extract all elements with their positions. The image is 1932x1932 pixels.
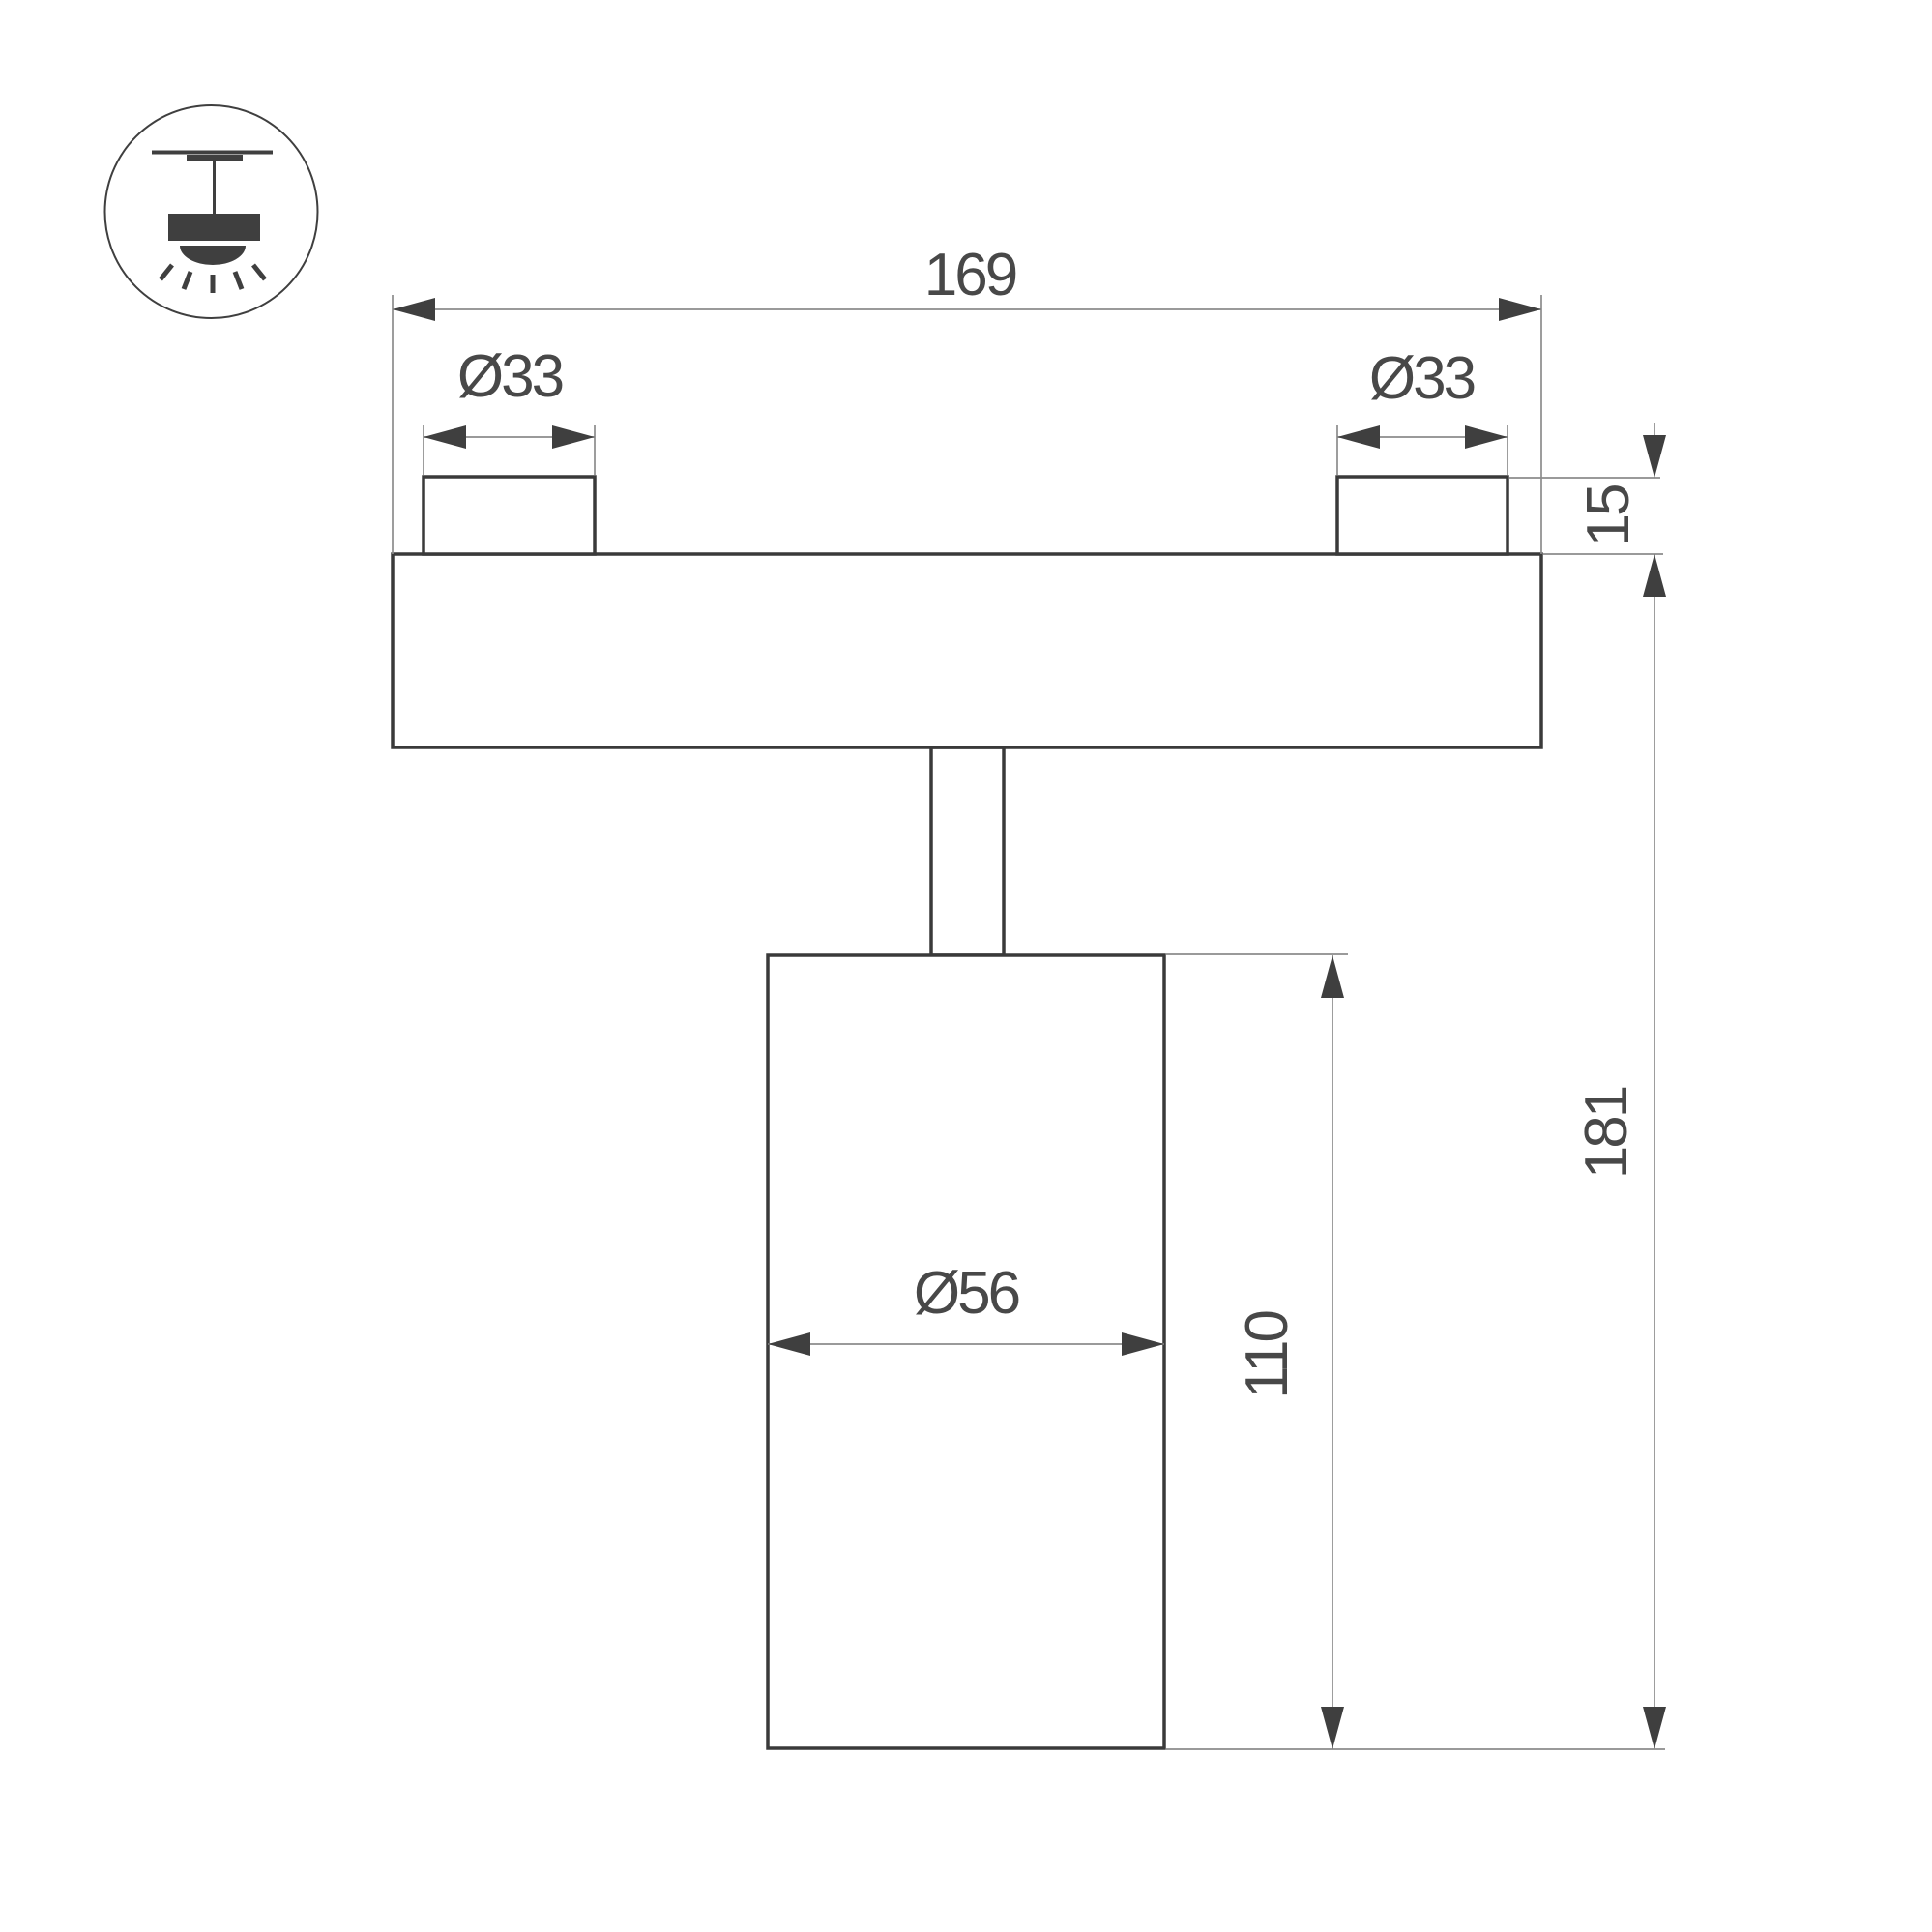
icon-lamp-body (168, 214, 260, 241)
dim-right-boss-diameter: Ø33 (1337, 345, 1508, 475)
dim-boss-height: 15 (1509, 423, 1666, 554)
arrow-right-icon (1465, 425, 1508, 449)
drawing-canvas: 169 Ø33 Ø33 15 181 1 (0, 0, 1932, 1932)
dim-label-boss-height: 15 (1575, 485, 1642, 546)
dim-body-height: 110 (1166, 954, 1665, 1749)
right-boss-outline (1337, 477, 1508, 554)
arrow-down-icon (1643, 435, 1666, 478)
arrow-up-icon (1643, 554, 1666, 597)
dim-label-body-height: 110 (1234, 1311, 1301, 1399)
arrow-left-icon (393, 298, 435, 321)
dim-label-overall-width: 169 (924, 242, 1016, 308)
arrow-right-icon (552, 425, 595, 449)
icon-light-rays (161, 265, 265, 293)
icon-track-bar (187, 155, 243, 161)
lamp-body-outline (768, 955, 1164, 1748)
arrow-down-icon (1321, 1707, 1344, 1749)
dim-label-right-boss-diameter: Ø33 (1369, 345, 1475, 412)
dim-label-total-height: 181 (1573, 1087, 1640, 1179)
dim-label-left-boss-diameter: Ø33 (457, 343, 563, 410)
left-boss-outline (424, 477, 595, 554)
dim-left-boss-diameter: Ø33 (424, 343, 595, 475)
dim-total-height: 181 (1573, 554, 1666, 1749)
stem-outline (931, 747, 1004, 955)
arrow-up-icon (1321, 955, 1344, 998)
arrow-left-icon (424, 425, 466, 449)
technical-drawing: 169 Ø33 Ø33 15 181 1 (0, 0, 1932, 1932)
mount-plate-outline (393, 554, 1541, 747)
ceiling-mounted-light-icon (105, 105, 318, 318)
icon-lamp-dome (180, 246, 246, 265)
arrow-down-icon (1643, 1707, 1666, 1749)
arrow-right-icon (1499, 298, 1541, 321)
dim-label-body-diameter: Ø56 (914, 1260, 1019, 1327)
arrow-left-icon (1337, 425, 1380, 449)
